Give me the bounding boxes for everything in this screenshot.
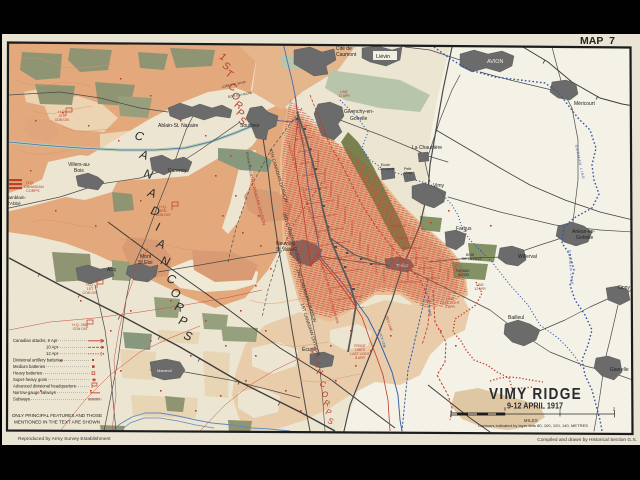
svg-text:Canadian attacks, 9 Apr: Canadian attacks, 9 Apr (13, 338, 58, 343)
svg-text:St.Eloi: St.Eloi (138, 260, 152, 266)
svg-text:Méricourt: Méricourt (574, 101, 595, 107)
svg-text:MAP 7: MAP 7 (580, 36, 615, 47)
svg-text:Gohelle: Gohelle (576, 235, 593, 241)
svg-text:Narrow-gauge railways: Narrow-gauge railways (13, 390, 56, 395)
svg-text:MENTIONED IN THE TEXT ARE SHOW: MENTIONED IN THE TEXT ARE SHOWN (14, 420, 100, 425)
svg-text:Bois: Bois (74, 168, 84, 174)
svg-text:La Chaudière: La Chaudière (412, 145, 442, 151)
svg-text:Willerval: Willerval (518, 254, 537, 260)
svg-text:Marœuil: Marœuil (157, 368, 172, 373)
svg-text:Oppy: Oppy (618, 285, 630, 291)
svg-text:Givenchy-en-: Givenchy-en- (344, 109, 374, 115)
svg-text:Advanced divisional headquarte: Advanced divisional headquarters (13, 384, 76, 389)
svg-text:CDN DIV: CDN DIV (156, 213, 171, 217)
svg-text:Acq: Acq (107, 267, 116, 273)
svg-text:12 APR: 12 APR (338, 94, 350, 98)
svg-text:8 APR: 8 APR (355, 356, 365, 360)
svg-text:Bailleul: Bailleul (508, 315, 524, 321)
svg-text:Divisional artillery batteries: Divisional artillery batteries (13, 358, 63, 363)
svg-text:VIMY RIDGE: VIMY RIDGE (489, 386, 582, 403)
svg-text:9-12 APRIL 1917: 9-12 APRIL 1917 (507, 402, 563, 411)
svg-text:l'Abbé: l'Abbé (8, 201, 21, 206)
svg-text:Medium batteries: Medium batteries (13, 364, 45, 369)
svg-text:Reproduced by Army Survey Esta: Reproduced by Army Survey Establishment (18, 436, 111, 442)
svg-text:Ablain-St. Nazaire: Ablain-St. Nazaire (158, 123, 199, 129)
svg-text:Heavy batteries: Heavy batteries (13, 371, 42, 376)
svg-text:DE LA VILLE: DE LA VILLE (462, 257, 483, 261)
svg-text:Subways: Subways (13, 397, 30, 402)
svg-text:CDN DIV: CDN DIV (55, 118, 70, 122)
svg-text:10 Apr: 10 Apr (46, 345, 59, 350)
svg-text:Super-heavy guns: Super-heavy guns (13, 377, 47, 382)
svg-text:Gavrelle: Gavrelle (610, 367, 629, 373)
svg-text:Carency: Carency (168, 168, 187, 174)
svg-text:Caumont: Caumont (336, 52, 357, 58)
svg-text:Vimy: Vimy (433, 183, 445, 189)
svg-text:CDN DIV: CDN DIV (73, 327, 88, 331)
svg-text:Compiled and drawn by Historic: Compiled and drawn by Historical Section… (537, 437, 637, 443)
svg-text:12 APR: 12 APR (474, 287, 486, 291)
svg-text:4 APR: 4 APR (445, 305, 455, 309)
svg-text:ONLY PRINCIPAL FEATURES AND TH: ONLY PRINCIPAL FEATURES AND THOSE (12, 413, 102, 418)
svg-text:AVION: AVION (487, 59, 503, 65)
svg-text:CON DIV: CON DIV (83, 291, 99, 295)
svg-text:12 Apr: 12 Apr (46, 351, 59, 356)
svg-text:Vimy: Vimy (404, 171, 412, 175)
svg-text:CORPS: CORPS (26, 189, 40, 193)
svg-text:Liévin: Liévin (376, 54, 390, 60)
svg-text:Contours indicated by layer ti: Contours indicated by layer tints 80, 10… (478, 423, 588, 428)
